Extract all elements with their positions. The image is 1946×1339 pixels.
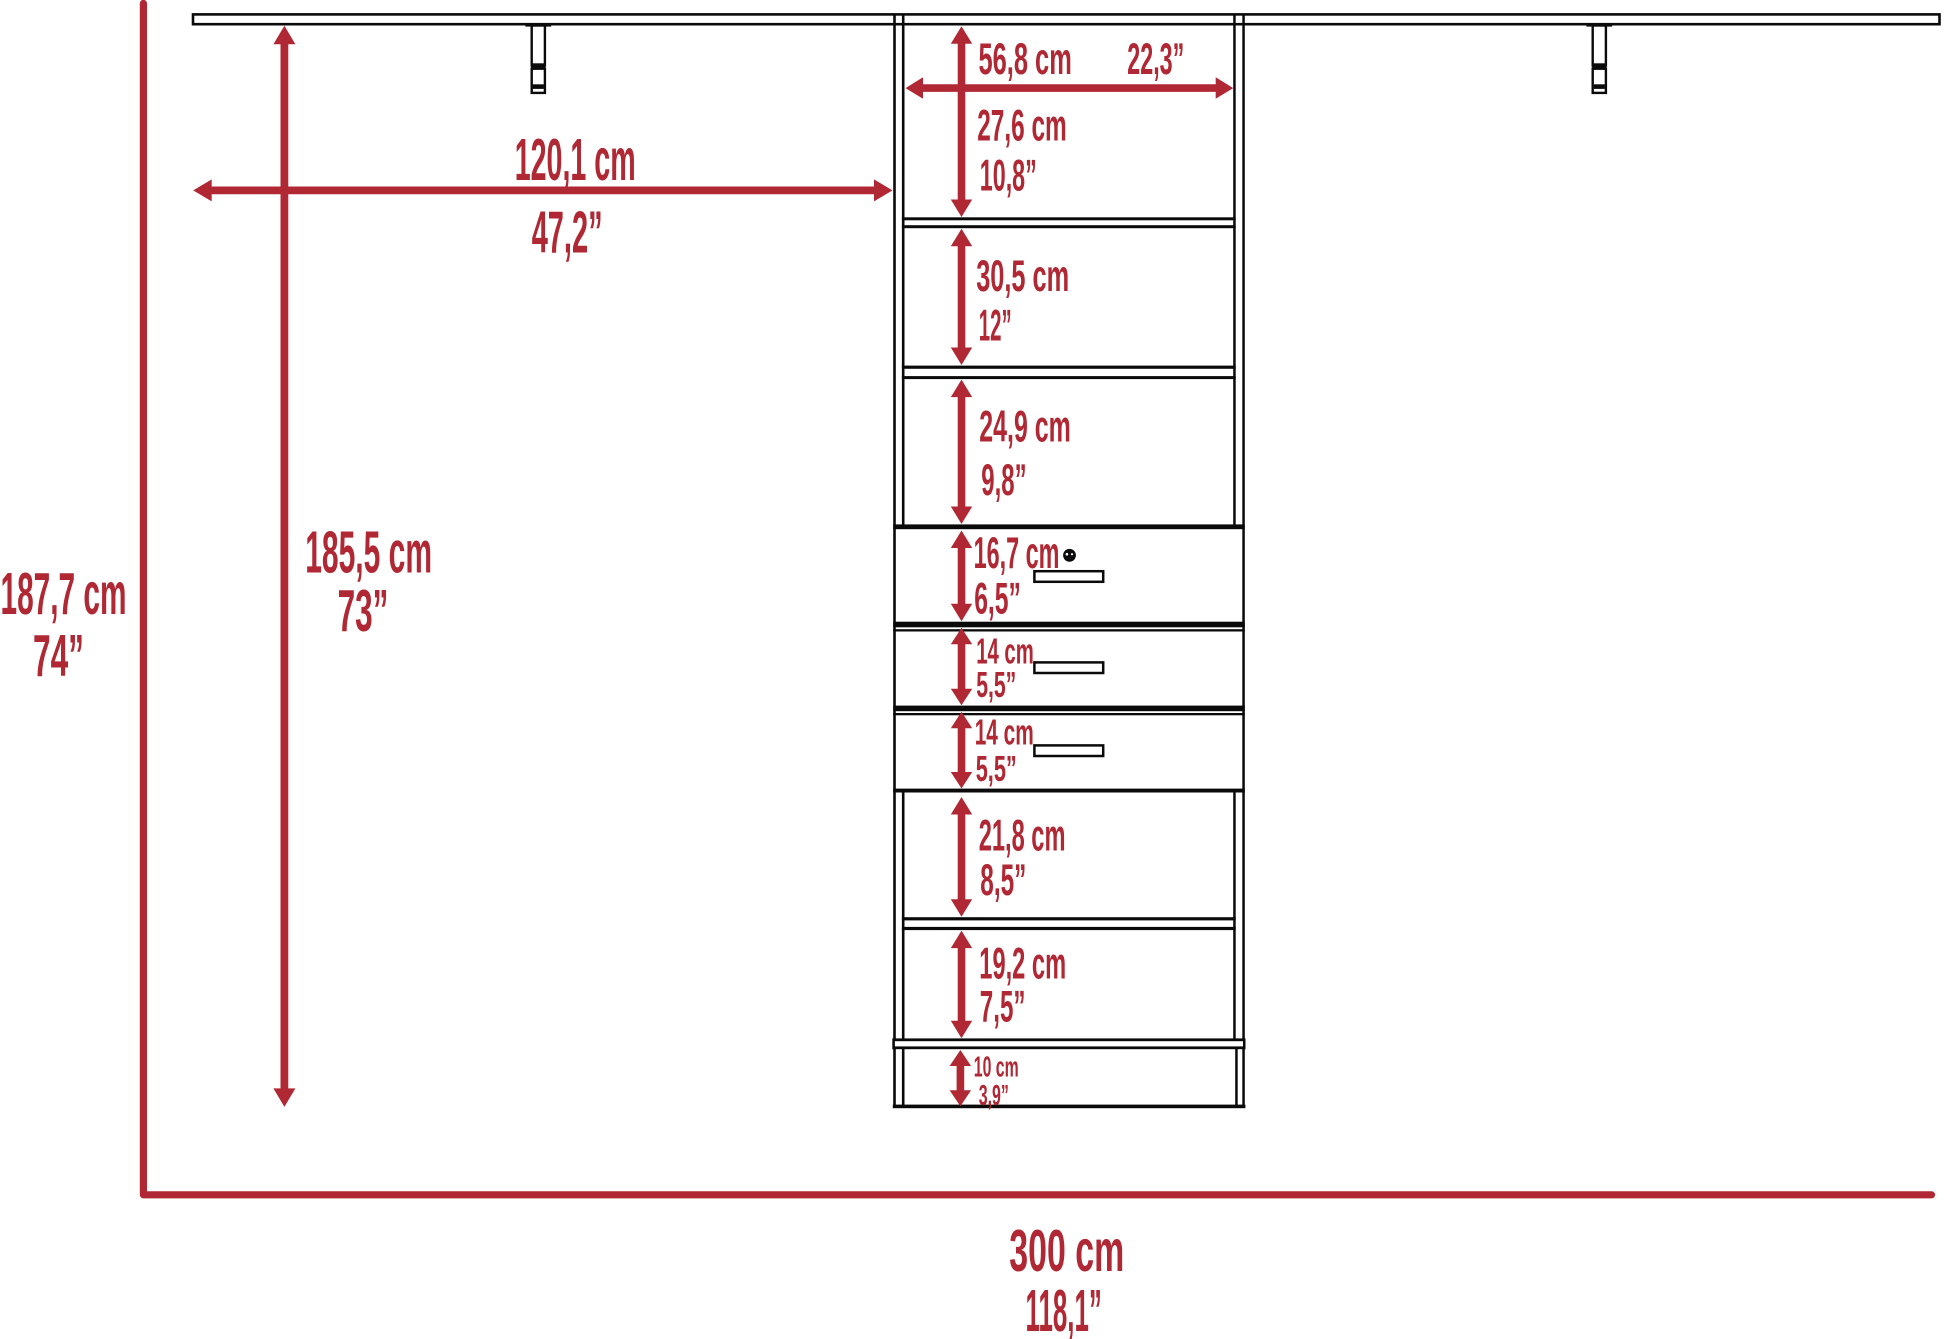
svg-text:118,1”: 118,1” [1026, 1277, 1102, 1339]
svg-text:16,7 cm: 16,7 cm [974, 529, 1060, 578]
svg-text:9,8”: 9,8” [981, 456, 1026, 505]
svg-text:73”: 73” [338, 577, 389, 644]
svg-text:6,5”: 6,5” [974, 574, 1021, 623]
svg-text:185,5 cm: 185,5 cm [305, 519, 432, 586]
svg-text:3,9”: 3,9” [979, 1080, 1009, 1112]
svg-text:21,8 cm: 21,8 cm [979, 811, 1066, 860]
svg-text:120,1 cm: 120,1 cm [515, 126, 636, 193]
svg-text:47,2”: 47,2” [532, 199, 603, 266]
svg-text:24,9 cm: 24,9 cm [979, 403, 1071, 452]
svg-text:8,5”: 8,5” [980, 856, 1026, 905]
svg-text:12”: 12” [979, 301, 1012, 350]
svg-text:5,5”: 5,5” [976, 748, 1017, 789]
svg-text:7,5”: 7,5” [980, 983, 1026, 1032]
svg-text:187,7 cm: 187,7 cm [1, 560, 127, 627]
svg-text:19,2 cm: 19,2 cm [979, 939, 1066, 988]
svg-text:10,8”: 10,8” [980, 151, 1037, 200]
svg-text:27,6 cm: 27,6 cm [977, 102, 1066, 151]
svg-text:5,5”: 5,5” [976, 664, 1016, 705]
svg-text:30,5 cm: 30,5 cm [976, 252, 1069, 301]
svg-text:10 cm: 10 cm [974, 1052, 1019, 1084]
svg-text:74”: 74” [33, 622, 84, 689]
svg-text:22,3”: 22,3” [1127, 35, 1184, 84]
svg-text:300 cm: 300 cm [1009, 1217, 1124, 1284]
svg-text:14 cm: 14 cm [975, 711, 1034, 752]
svg-text:56,8 cm: 56,8 cm [979, 35, 1072, 84]
